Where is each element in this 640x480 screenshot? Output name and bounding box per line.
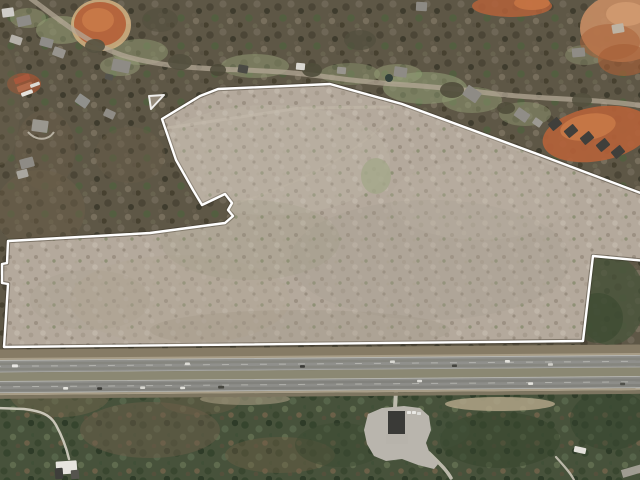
field-patch: [390, 160, 570, 240]
vehicle: [528, 382, 533, 385]
tree-clump: [344, 30, 376, 50]
vehicle: [185, 363, 190, 366]
parked-truck: [417, 412, 421, 415]
building-roof: [572, 47, 586, 57]
tree-clump: [497, 102, 515, 114]
terrain-patch: [445, 397, 555, 411]
tree-clump: [572, 93, 592, 107]
commercial-building-roof: [388, 411, 405, 434]
building-roof: [237, 64, 248, 74]
aerial-map-image: [0, 0, 640, 480]
vehicle: [140, 386, 145, 389]
vehicle: [12, 364, 18, 367]
tree-clump: [440, 82, 464, 98]
tree-clump: [210, 64, 226, 76]
vehicle: [63, 387, 68, 390]
building-roof: [296, 63, 306, 71]
aerial-parcel-screenshot: [0, 0, 640, 480]
vehicle: [452, 364, 457, 367]
building-roof: [55, 468, 64, 480]
tree-clump: [142, 8, 178, 32]
building-roof: [393, 66, 407, 78]
parked-truck: [412, 411, 416, 414]
vehicle: [180, 387, 185, 390]
field-patch: [361, 158, 391, 194]
highway: [0, 344, 640, 398]
red-clay-patch: [82, 8, 114, 32]
vehicle: [218, 386, 224, 389]
field-patch: [30, 270, 150, 330]
vehicle: [505, 360, 510, 363]
tree-clump: [85, 39, 105, 53]
vehicle: [300, 365, 305, 368]
building-roof: [337, 67, 347, 75]
building-roof: [31, 119, 49, 133]
commercial-apron: [386, 434, 408, 444]
parked-truck: [407, 411, 411, 414]
vehicle: [620, 383, 625, 386]
building-roof: [71, 470, 80, 480]
building-roof: [1, 7, 14, 18]
building-roof: [416, 2, 427, 12]
tree-clump: [168, 54, 192, 70]
vehicle: [417, 380, 422, 383]
tree-clump: [385, 74, 393, 82]
vehicle: [548, 363, 553, 366]
terrain-patch: [95, 127, 165, 183]
vehicle: [97, 387, 102, 390]
vehicle: [390, 360, 395, 363]
